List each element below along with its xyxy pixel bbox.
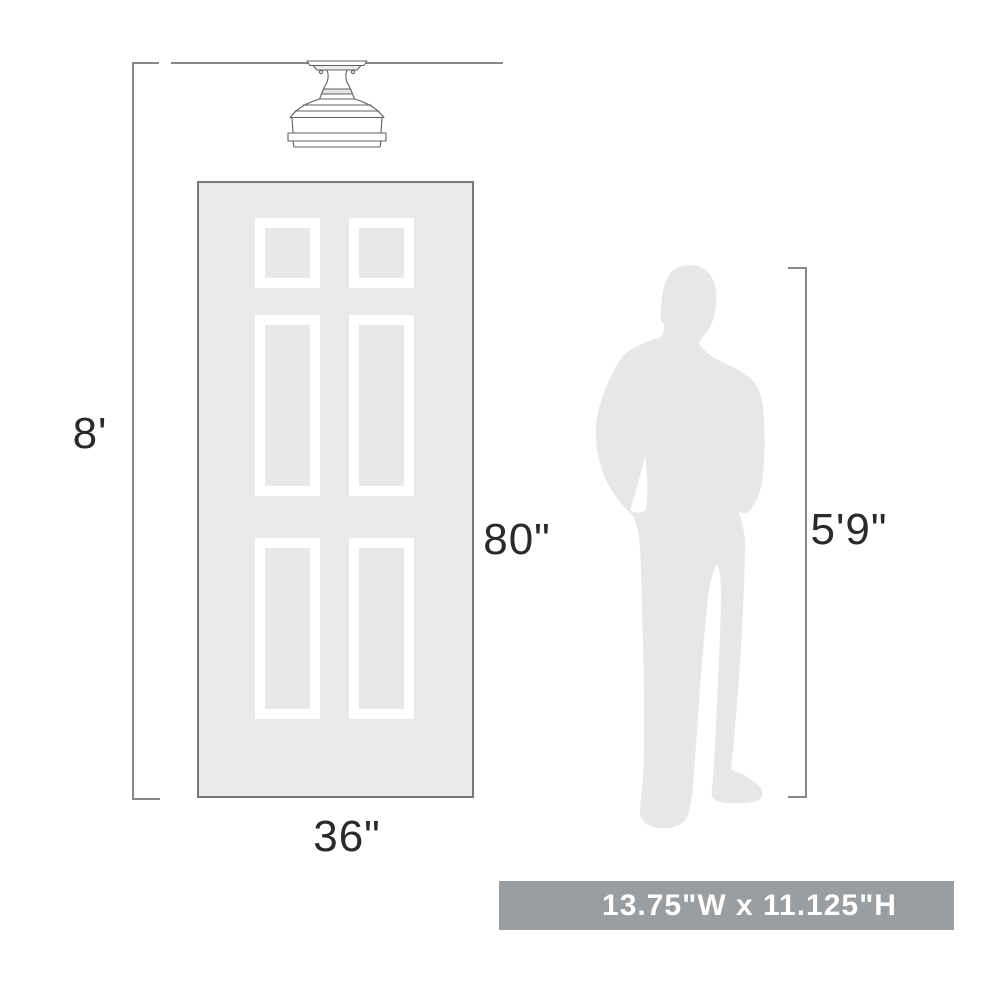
ceiling-height-label: 8' [73, 409, 108, 459]
fixture-size-banner: 13.75"W x 11.125"H [499, 881, 954, 930]
ceiling-height-dimension-line [132, 63, 134, 800]
person-height-dimension-top-tick [788, 267, 807, 269]
product-dimension-diagram: 8' [0, 0, 1000, 1000]
fixture-size-text: 13.75"W x 11.125"H [602, 889, 897, 923]
person-height-dimension-line [805, 267, 807, 798]
door-panel [349, 218, 414, 288]
ceiling-height-dimension-bottom-tick [132, 798, 160, 800]
semi-flush-ceiling-light-icon [282, 59, 392, 151]
door-height-label: 80" [483, 515, 551, 565]
ceiling-height-dimension-top-tick [132, 62, 159, 64]
door-width-label: 36" [313, 812, 381, 862]
six-panel-door-illustration [197, 181, 474, 798]
door-panel [255, 218, 320, 288]
person-height-label: 5'9" [811, 505, 888, 555]
person-height-dimension-bottom-tick [788, 796, 807, 798]
door-panel [255, 538, 320, 719]
door-panel [349, 315, 414, 496]
standing-man-silhouette [595, 263, 765, 830]
door-panel [349, 538, 414, 719]
door-panel [255, 315, 320, 496]
